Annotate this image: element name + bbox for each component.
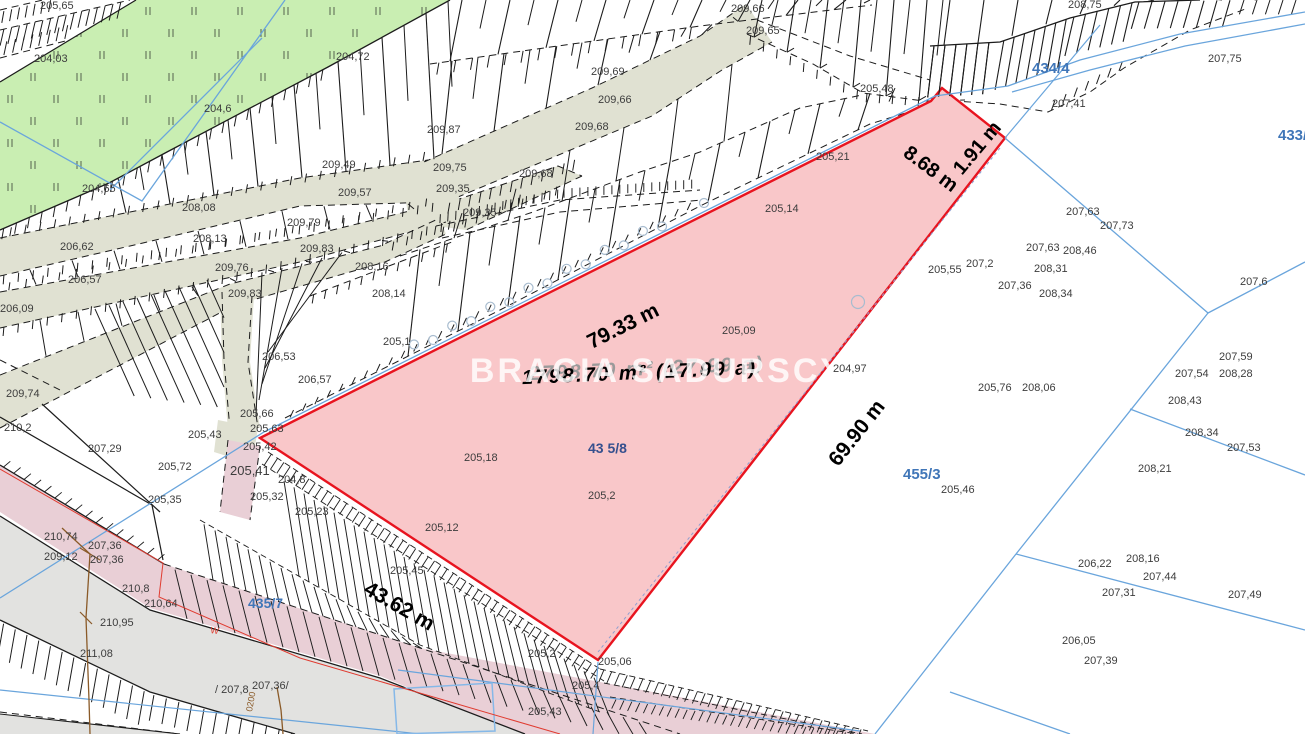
svg-text:206,22: 206,22 <box>1078 558 1112 570</box>
svg-text:207,29: 207,29 <box>88 443 122 455</box>
svg-text:207,2: 207,2 <box>966 258 994 270</box>
svg-text:207,31: 207,31 <box>1102 587 1136 599</box>
svg-text:210,2: 210,2 <box>4 422 32 434</box>
svg-text:207,36/: 207,36/ <box>252 680 290 692</box>
svg-text:205,43: 205,43 <box>528 706 562 718</box>
svg-text:210,95: 210,95 <box>100 617 134 629</box>
svg-text:/ 207,8: / 207,8 <box>215 684 249 696</box>
svg-text:205,18: 205,18 <box>464 452 498 464</box>
svg-text:204,03: 204,03 <box>34 53 68 65</box>
svg-text:207,75: 207,75 <box>1208 53 1242 65</box>
svg-text:208,06: 208,06 <box>1022 382 1056 394</box>
svg-text:205,46: 205,46 <box>941 484 975 496</box>
svg-text:205,42: 205,42 <box>243 441 277 453</box>
svg-text:209,65: 209,65 <box>746 25 780 37</box>
svg-text:209,68: 209,68 <box>575 121 609 133</box>
svg-text:208,08: 208,08 <box>182 202 216 214</box>
svg-text:205,09: 205,09 <box>722 325 756 337</box>
svg-text:205,63: 205,63 <box>250 423 284 435</box>
svg-text:208,14: 208,14 <box>372 288 406 300</box>
svg-text:205,65: 205,65 <box>40 0 74 12</box>
svg-text:208,43: 208,43 <box>1168 395 1202 407</box>
svg-text:209,69: 209,69 <box>591 66 625 78</box>
svg-text:206,57: 206,57 <box>68 274 102 286</box>
svg-text:205,66: 205,66 <box>240 408 274 420</box>
svg-text:209,83: 209,83 <box>300 243 334 255</box>
svg-text:206,53: 206,53 <box>262 351 296 363</box>
svg-text:206,09: 206,09 <box>0 303 34 315</box>
svg-text:209,12: 209,12 <box>44 551 78 563</box>
svg-text:207,53: 207,53 <box>1227 442 1261 454</box>
svg-text:205,1: 205,1 <box>383 336 411 348</box>
svg-text:435/7: 435/7 <box>248 595 283 611</box>
svg-text:207,6: 207,6 <box>1240 276 1268 288</box>
svg-text:208,28: 208,28 <box>1219 368 1253 380</box>
svg-text:208,13: 208,13 <box>193 233 227 245</box>
svg-text:207,73: 207,73 <box>1100 220 1134 232</box>
svg-text:207,36: 207,36 <box>998 280 1032 292</box>
svg-text:205,12: 205,12 <box>425 522 459 534</box>
svg-text:208,34: 208,34 <box>1039 288 1073 300</box>
svg-text:43 5/8: 43 5/8 <box>588 440 627 456</box>
svg-text:205,76: 205,76 <box>978 382 1012 394</box>
svg-text:206,57: 206,57 <box>298 374 332 386</box>
svg-text:455/3: 455/3 <box>903 466 941 483</box>
svg-text:433/4: 433/4 <box>1278 127 1305 144</box>
svg-text:208,21: 208,21 <box>1138 463 1172 475</box>
svg-text:209,79: 209,79 <box>287 217 321 229</box>
svg-text:206,62: 206,62 <box>60 241 94 253</box>
svg-text:209,76: 209,76 <box>215 262 249 274</box>
svg-text:208,31: 208,31 <box>1034 263 1068 275</box>
svg-text:205,32: 205,32 <box>250 491 284 503</box>
svg-text:207,59: 207,59 <box>1219 351 1253 363</box>
svg-text:205,48: 205,48 <box>860 83 894 95</box>
svg-text:205,4: 205,4 <box>572 680 600 692</box>
svg-text:209,87: 209,87 <box>427 124 461 136</box>
svg-text:209,35: 209,35 <box>436 183 470 195</box>
svg-text:211,08: 211,08 <box>80 648 113 660</box>
svg-text:207,49: 207,49 <box>1228 589 1262 601</box>
svg-text:205,55: 205,55 <box>928 264 962 276</box>
svg-text:210,74: 210,74 <box>44 531 78 543</box>
svg-text:209,74: 209,74 <box>6 388 40 400</box>
svg-text:210,64: 210,64 <box>144 598 178 610</box>
svg-text:205,2: 205,2 <box>588 490 616 502</box>
svg-text:209,66: 209,66 <box>598 94 632 106</box>
svg-text:209,49: 209,49 <box>322 159 356 171</box>
svg-text:205,35: 205,35 <box>148 494 182 506</box>
svg-text:207,54: 207,54 <box>1175 368 1209 380</box>
svg-text:208,75: 208,75 <box>1068 0 1102 11</box>
svg-text:205,14: 205,14 <box>765 203 799 215</box>
svg-text:208,16: 208,16 <box>355 261 389 273</box>
svg-text:205,45: 205,45 <box>390 565 424 577</box>
svg-text:434/4: 434/4 <box>1032 60 1070 77</box>
svg-text:209,83: 209,83 <box>228 288 262 300</box>
svg-text:207,44: 207,44 <box>1143 571 1177 583</box>
svg-text:205,41: 205,41 <box>230 463 270 478</box>
svg-text:204,65: 204,65 <box>82 183 116 195</box>
svg-text:205,06: 205,06 <box>598 656 632 668</box>
svg-text:209,66: 209,66 <box>731 3 765 15</box>
svg-text:204,97: 204,97 <box>833 363 867 375</box>
svg-text:205,43: 205,43 <box>188 429 222 441</box>
svg-text:BRACIA SADURSCY: BRACIA SADURSCY <box>470 352 846 390</box>
svg-text:205,21: 205,21 <box>816 151 850 163</box>
svg-text:209,75: 209,75 <box>433 162 467 174</box>
svg-text:209,68: 209,68 <box>519 168 553 180</box>
svg-text:208,16: 208,16 <box>1126 553 1160 565</box>
svg-text:207,63: 207,63 <box>1026 242 1060 254</box>
svg-text:205,23: 205,23 <box>295 506 329 518</box>
svg-text:207,41: 207,41 <box>1052 98 1086 110</box>
svg-text:206,05: 206,05 <box>1062 635 1096 647</box>
svg-text:209,57: 209,57 <box>338 187 372 199</box>
svg-text:207,39: 207,39 <box>1084 655 1118 667</box>
svg-text:205,72: 205,72 <box>158 461 192 473</box>
svg-text:208,46: 208,46 <box>1063 245 1097 257</box>
svg-text:207,36: 207,36 <box>88 540 122 552</box>
svg-text:207,63: 207,63 <box>1066 206 1100 218</box>
svg-text:204,6: 204,6 <box>204 103 232 115</box>
svg-text:205,2: 205,2 <box>528 648 556 660</box>
svg-text:210,8: 210,8 <box>122 583 150 595</box>
svg-text:204,8: 204,8 <box>278 474 306 486</box>
svg-text:208,34: 208,34 <box>1185 427 1219 439</box>
svg-text:209,35: 209,35 <box>463 207 497 219</box>
svg-text:204,72: 204,72 <box>336 51 370 63</box>
svg-text:207,36: 207,36 <box>90 554 124 566</box>
